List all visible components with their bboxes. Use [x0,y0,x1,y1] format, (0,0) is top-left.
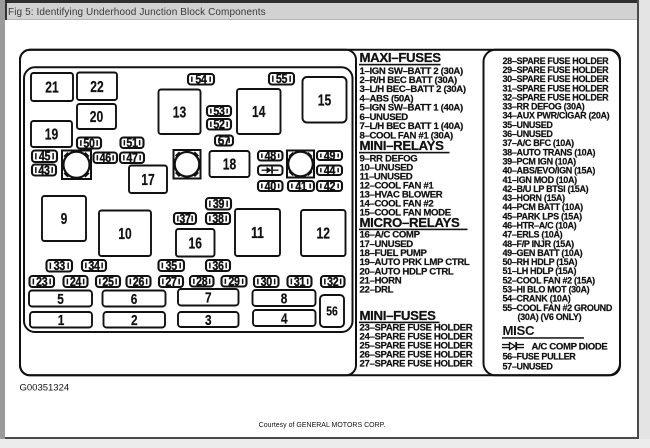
svg-text:19: 19 [45,125,59,143]
svg-text:43: 43 [38,164,50,178]
svg-text:(30A) (V6 ONLY): (30A) (V6 ONLY) [518,312,582,322]
svg-text:26: 26 [133,275,145,289]
svg-text:4: 4 [281,310,288,327]
svg-text:MAXI–FUSES: MAXI–FUSES [360,50,442,65]
svg-text:21: 21 [45,78,59,96]
svg-text:13: 13 [173,103,187,121]
svg-text:31: 31 [294,275,306,289]
svg-text:41: 41 [295,180,307,194]
svg-text:46: 46 [100,151,112,165]
svg-text:MINI–FUSES: MINI–FUSES [360,308,437,323]
svg-text:MISC: MISC [503,323,536,338]
svg-text:16: 16 [189,234,203,252]
svg-text:48: 48 [265,149,277,163]
svg-text:57–UNUSED: 57–UNUSED [503,361,554,371]
svg-text:34: 34 [88,259,100,273]
svg-text:38: 38 [212,212,224,226]
svg-text:18: 18 [223,155,237,173]
svg-text:24: 24 [70,275,82,289]
svg-text:23: 23 [36,275,48,289]
svg-text:49: 49 [324,149,336,163]
svg-text:MICRO–RELAYS: MICRO–RELAYS [360,215,460,230]
svg-text:15: 15 [318,91,332,109]
svg-text:35: 35 [166,259,178,273]
svg-text:7: 7 [205,289,212,306]
svg-text:27–SPARE FUSE HOLDER: 27–SPARE FUSE HOLDER [360,359,473,370]
svg-text:G00351324: G00351324 [20,383,70,394]
svg-text:44: 44 [324,164,336,178]
svg-text:Courtesy of GENERAL MOTORS COR: Courtesy of GENERAL MOTORS CORP. [259,422,386,429]
svg-text:36: 36 [212,259,224,273]
svg-text:54: 54 [195,73,207,87]
svg-text:1: 1 [58,312,65,329]
svg-text:50: 50 [83,137,94,151]
svg-text:5: 5 [57,291,64,308]
svg-text:28: 28 [196,275,208,289]
svg-text:6: 6 [131,291,138,308]
svg-text:2: 2 [131,312,138,329]
svg-text:53: 53 [213,105,225,119]
svg-text:55: 55 [276,72,288,86]
svg-text:39: 39 [213,197,225,211]
svg-text:8: 8 [281,290,288,307]
svg-text:29: 29 [228,275,240,289]
svg-text:40: 40 [265,180,276,194]
svg-text:45: 45 [39,150,51,164]
svg-text:32: 32 [327,275,338,289]
svg-text:10: 10 [118,224,132,242]
svg-text:3: 3 [205,312,212,329]
svg-text:57: 57 [218,134,229,148]
svg-text:56: 56 [326,305,338,319]
svg-text:33: 33 [54,259,66,273]
svg-text:12: 12 [317,224,331,242]
svg-text:47: 47 [126,151,137,165]
svg-text:22–DRL: 22–DRL [360,285,394,296]
svg-text:20: 20 [90,108,104,126]
svg-text:9: 9 [61,210,68,228]
svg-text:51: 51 [126,136,138,150]
svg-text:42: 42 [324,180,335,194]
svg-text:MINI–RELAYS: MINI–RELAYS [360,138,445,153]
svg-text:17: 17 [141,170,155,188]
svg-text:30: 30 [261,275,272,289]
svg-text:25: 25 [102,275,114,289]
svg-text:52: 52 [213,118,224,132]
svg-text:11: 11 [251,224,264,242]
svg-text:14: 14 [252,103,266,121]
svg-text:37: 37 [179,212,190,226]
svg-text:27: 27 [165,275,176,289]
svg-text:22: 22 [90,77,104,95]
